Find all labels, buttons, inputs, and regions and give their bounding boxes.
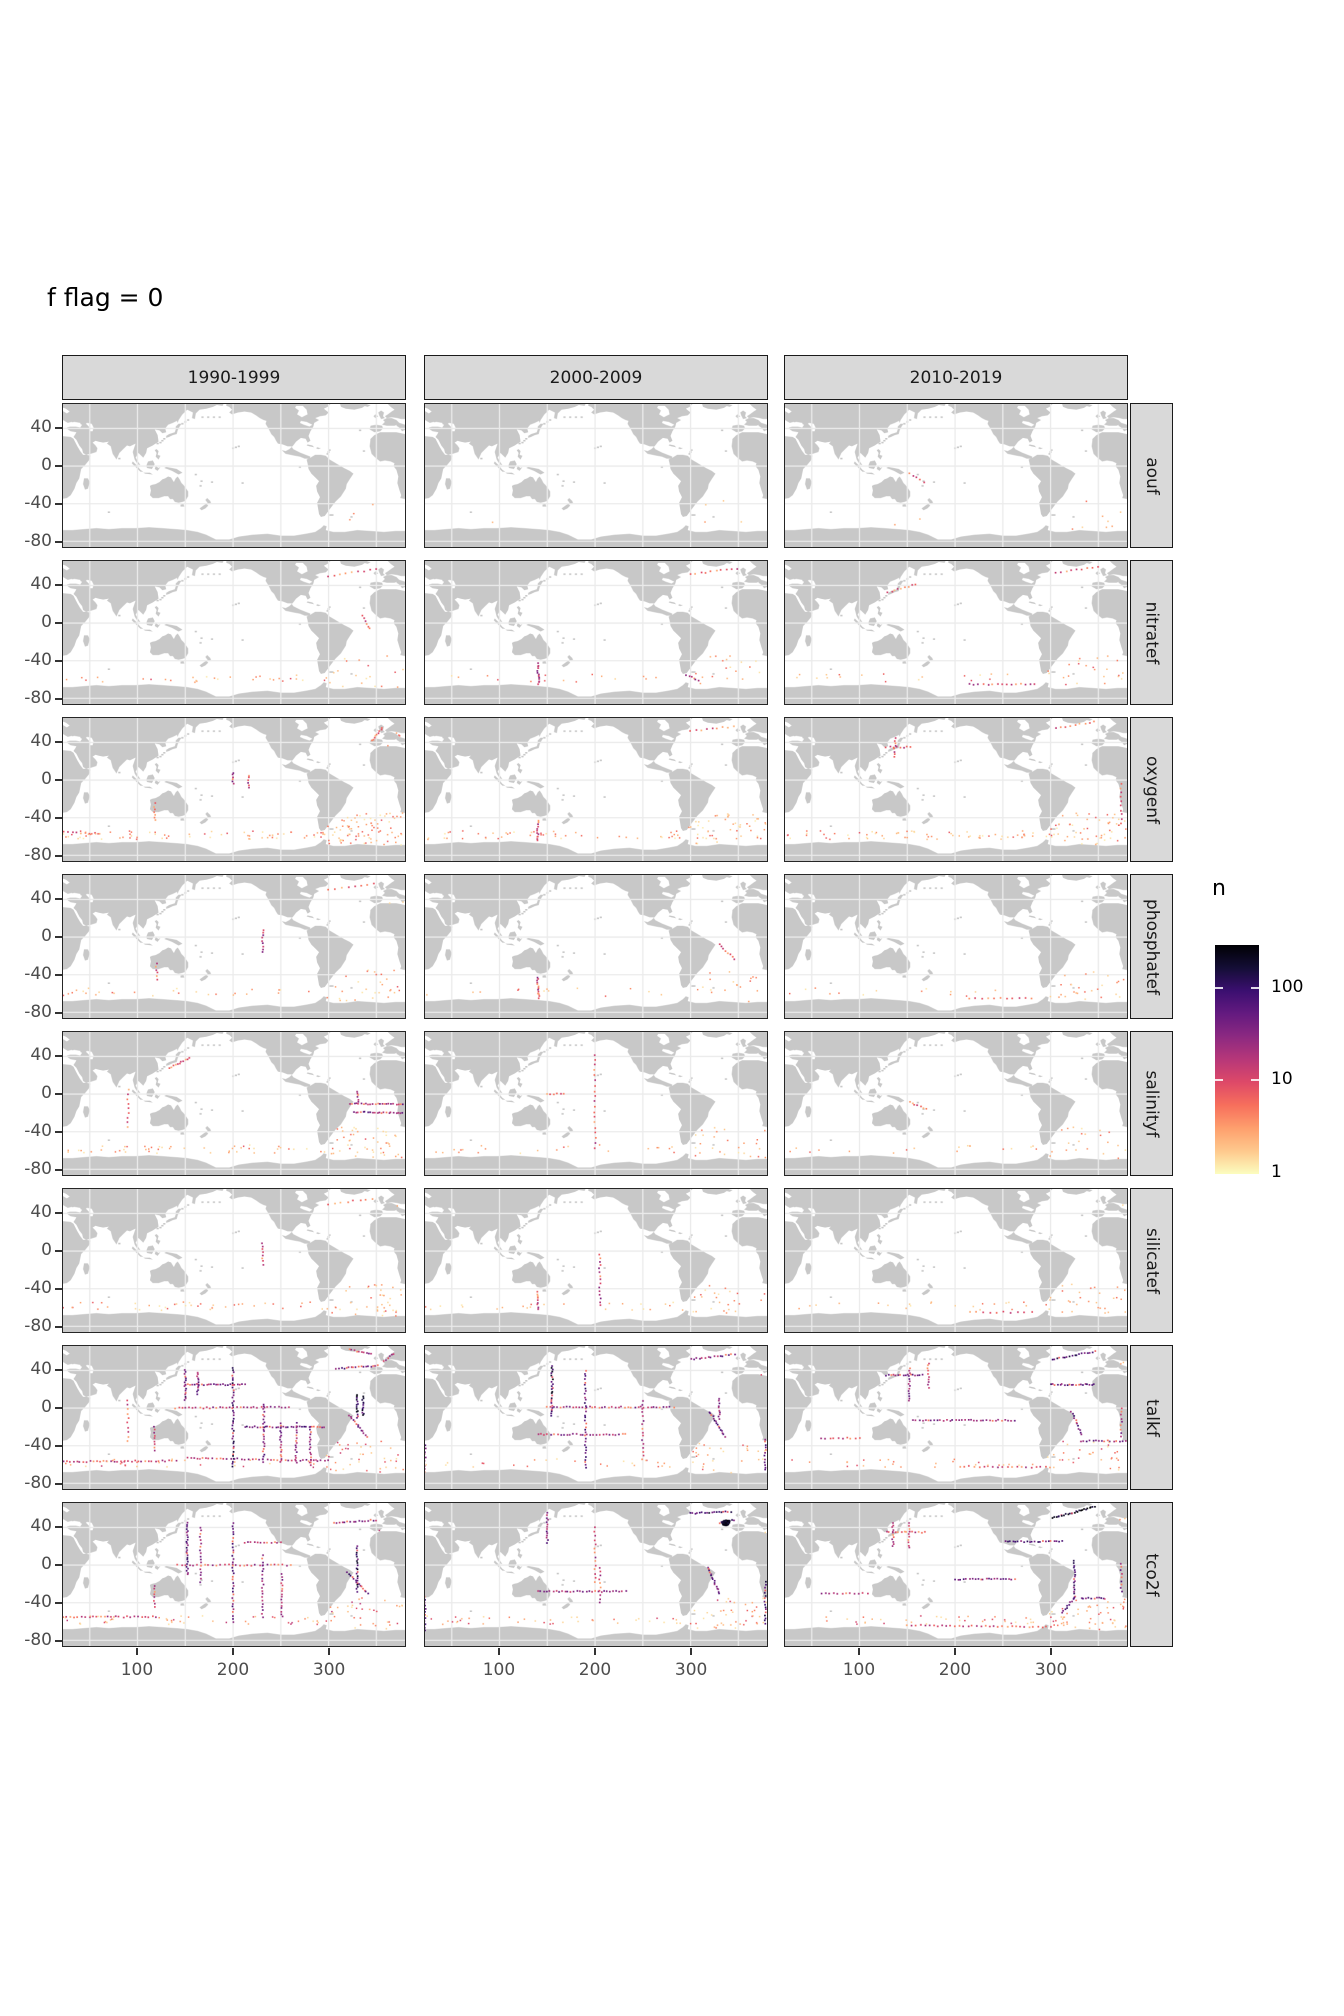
- map-panel-oxygenf-2010-2019: [784, 717, 1128, 862]
- facet-strip-label: oxygenf: [1142, 755, 1162, 823]
- y-axis-tick: [55, 1169, 62, 1171]
- y-axis-tick: [55, 898, 62, 900]
- map-panel-salinityf-1990-1999: [62, 1031, 406, 1176]
- y-axis-label: -80: [8, 688, 52, 708]
- map-panel-salinityf-2010-2019: [784, 1031, 1128, 1176]
- y-axis-tick: [55, 1407, 62, 1409]
- y-axis-tick: [55, 1093, 62, 1095]
- x-axis-label: 300: [661, 1660, 721, 1680]
- y-axis-tick: [55, 855, 62, 857]
- x-axis-label: 300: [299, 1660, 359, 1680]
- x-axis-label: 100: [107, 1660, 167, 1680]
- y-axis-tick: [55, 503, 62, 505]
- y-axis-tick: [55, 1483, 62, 1485]
- x-axis-label: 300: [1021, 1660, 1081, 1680]
- legend-colorbar: [1215, 945, 1259, 1174]
- map-panel-aouf-2000-2009: [424, 403, 768, 548]
- x-axis-tick: [954, 1648, 956, 1655]
- y-axis-label: 40: [8, 417, 52, 437]
- y-axis-label: -40: [8, 1592, 52, 1612]
- y-axis-label: 0: [8, 1240, 52, 1260]
- x-axis-label: 200: [925, 1660, 985, 1680]
- y-axis-tick: [55, 1131, 62, 1133]
- facet-strip-label: talkf: [1141, 1399, 1161, 1437]
- y-axis-tick: [55, 1250, 62, 1252]
- y-axis-label: 40: [8, 731, 52, 751]
- facet-strip-row-aouf: aouf: [1130, 403, 1173, 548]
- x-axis-tick: [1050, 1648, 1052, 1655]
- x-axis-label: 100: [829, 1660, 889, 1680]
- facet-strip-label: tco2f: [1142, 1553, 1162, 1596]
- map-panel-phosphatef-2000-2009: [424, 874, 768, 1019]
- y-axis-tick: [55, 1212, 62, 1214]
- map-panel-tco2f-2010-2019: [784, 1502, 1128, 1647]
- y-axis-label: 40: [8, 1359, 52, 1379]
- y-axis-tick: [55, 1445, 62, 1447]
- map-panel-tco2f-1990-1999: [62, 1502, 406, 1647]
- x-axis-tick: [594, 1648, 596, 1655]
- facet-strip-col-2000-2009: 2000-2009: [424, 355, 768, 400]
- facet-strip-row-salinityf: salinityf: [1130, 1031, 1173, 1176]
- y-axis-label: -80: [8, 1002, 52, 1022]
- map-panel-tco2f-2000-2009: [424, 1502, 768, 1647]
- facet-strip-col-2010-2019: 2010-2019: [784, 355, 1128, 400]
- map-panel-aouf-2010-2019: [784, 403, 1128, 548]
- x-axis-label: 100: [469, 1660, 529, 1680]
- y-axis-tick: [55, 1326, 62, 1328]
- y-axis-tick: [55, 1564, 62, 1566]
- legend-tick-mark: [1251, 987, 1259, 989]
- y-axis-label: -40: [8, 807, 52, 827]
- facet-strip-label: phosphatef: [1142, 899, 1162, 995]
- map-panel-nitratef-2000-2009: [424, 560, 768, 705]
- y-axis-tick: [55, 541, 62, 543]
- y-axis-tick: [55, 1602, 62, 1604]
- y-axis-label: 0: [8, 1397, 52, 1417]
- facet-strip-label: aouf: [1141, 457, 1161, 495]
- facet-strip-label: nitratef: [1142, 601, 1162, 664]
- map-panel-nitratef-1990-1999: [62, 560, 406, 705]
- facet-strip-row-tco2f: tco2f: [1130, 1502, 1173, 1647]
- facet-strip-col-1990-1999: 1990-1999: [62, 355, 406, 400]
- facet-strip-row-silicatef: silicatef: [1130, 1188, 1173, 1333]
- facet-strip-label: salinityf: [1142, 1070, 1162, 1137]
- y-axis-tick: [55, 779, 62, 781]
- map-panel-salinityf-2000-2009: [424, 1031, 768, 1176]
- y-axis-label: 0: [8, 926, 52, 946]
- y-axis-label: -80: [8, 531, 52, 551]
- map-panel-phosphatef-1990-1999: [62, 874, 406, 1019]
- map-panel-oxygenf-1990-1999: [62, 717, 406, 862]
- y-axis-label: 0: [8, 1554, 52, 1574]
- y-axis-label: 40: [8, 888, 52, 908]
- y-axis-tick: [55, 1012, 62, 1014]
- facet-strip-row-phosphatef: phosphatef: [1130, 874, 1173, 1019]
- y-axis-label: 0: [8, 1083, 52, 1103]
- map-panel-talkf-2010-2019: [784, 1345, 1128, 1490]
- figure: f flag = 0 1990-1999 2000-2009 2010-2019…: [0, 0, 1344, 2016]
- legend-tick-label: 10: [1271, 1069, 1293, 1089]
- y-axis-tick: [55, 427, 62, 429]
- facet-strip-label: silicatef: [1142, 1228, 1162, 1294]
- y-axis-tick: [55, 465, 62, 467]
- x-axis-tick: [690, 1648, 692, 1655]
- x-axis-tick: [328, 1648, 330, 1655]
- map-panel-silicatef-2010-2019: [784, 1188, 1128, 1333]
- y-axis-tick: [55, 1369, 62, 1371]
- facet-strip-label: 1990-1999: [188, 368, 281, 388]
- y-axis-label: 40: [8, 1516, 52, 1536]
- x-axis-tick: [232, 1648, 234, 1655]
- y-axis-tick: [55, 817, 62, 819]
- y-axis-label: 40: [8, 1202, 52, 1222]
- map-panel-silicatef-1990-1999: [62, 1188, 406, 1333]
- facet-strip-row-talkf: talkf: [1130, 1345, 1173, 1490]
- y-axis-label: -40: [8, 1278, 52, 1298]
- legend-tick-mark: [1251, 1079, 1259, 1081]
- y-axis-tick: [55, 1288, 62, 1290]
- y-axis-label: -80: [8, 1473, 52, 1493]
- y-axis-label: -40: [8, 493, 52, 513]
- y-axis-label: -80: [8, 1159, 52, 1179]
- x-axis-label: 200: [203, 1660, 263, 1680]
- legend-title: n: [1212, 876, 1226, 901]
- legend-tick-mark: [1215, 1079, 1223, 1081]
- x-axis-tick: [136, 1648, 138, 1655]
- y-axis-label: 40: [8, 1045, 52, 1065]
- y-axis-tick: [55, 936, 62, 938]
- map-panel-talkf-1990-1999: [62, 1345, 406, 1490]
- map-panel-talkf-2000-2009: [424, 1345, 768, 1490]
- y-axis-tick: [55, 974, 62, 976]
- y-axis-label: 0: [8, 612, 52, 632]
- y-axis-label: -80: [8, 1630, 52, 1650]
- x-axis-tick: [858, 1648, 860, 1655]
- map-panel-nitratef-2010-2019: [784, 560, 1128, 705]
- y-axis-label: -40: [8, 1435, 52, 1455]
- legend-tick-mark: [1215, 987, 1223, 989]
- facet-strip-label: 2000-2009: [550, 368, 643, 388]
- y-axis-tick: [55, 741, 62, 743]
- y-axis-tick: [55, 1055, 62, 1057]
- y-axis-label: -40: [8, 964, 52, 984]
- x-axis-label: 200: [565, 1660, 625, 1680]
- map-panel-silicatef-2000-2009: [424, 1188, 768, 1333]
- facet-strip-row-nitratef: nitratef: [1130, 560, 1173, 705]
- y-axis-tick: [55, 1640, 62, 1642]
- y-axis-label: -80: [8, 1316, 52, 1336]
- y-axis-tick: [55, 660, 62, 662]
- y-axis-tick: [55, 622, 62, 624]
- map-panel-phosphatef-2010-2019: [784, 874, 1128, 1019]
- facet-strip-row-oxygenf: oxygenf: [1130, 717, 1173, 862]
- plot-title: f flag = 0: [47, 283, 163, 312]
- y-axis-label: -80: [8, 845, 52, 865]
- map-panel-aouf-1990-1999: [62, 403, 406, 548]
- y-axis-label: -40: [8, 1121, 52, 1141]
- x-axis-tick: [498, 1648, 500, 1655]
- y-axis-label: 0: [8, 769, 52, 789]
- legend-tick-label: 100: [1271, 977, 1303, 997]
- y-axis-tick: [55, 584, 62, 586]
- map-panel-oxygenf-2000-2009: [424, 717, 768, 862]
- y-axis-tick: [55, 698, 62, 700]
- y-axis-tick: [55, 1526, 62, 1528]
- y-axis-label: 0: [8, 455, 52, 475]
- facet-strip-label: 2010-2019: [910, 368, 1003, 388]
- legend-tick-label: 1: [1271, 1162, 1282, 1182]
- y-axis-label: 40: [8, 574, 52, 594]
- y-axis-label: -40: [8, 650, 52, 670]
